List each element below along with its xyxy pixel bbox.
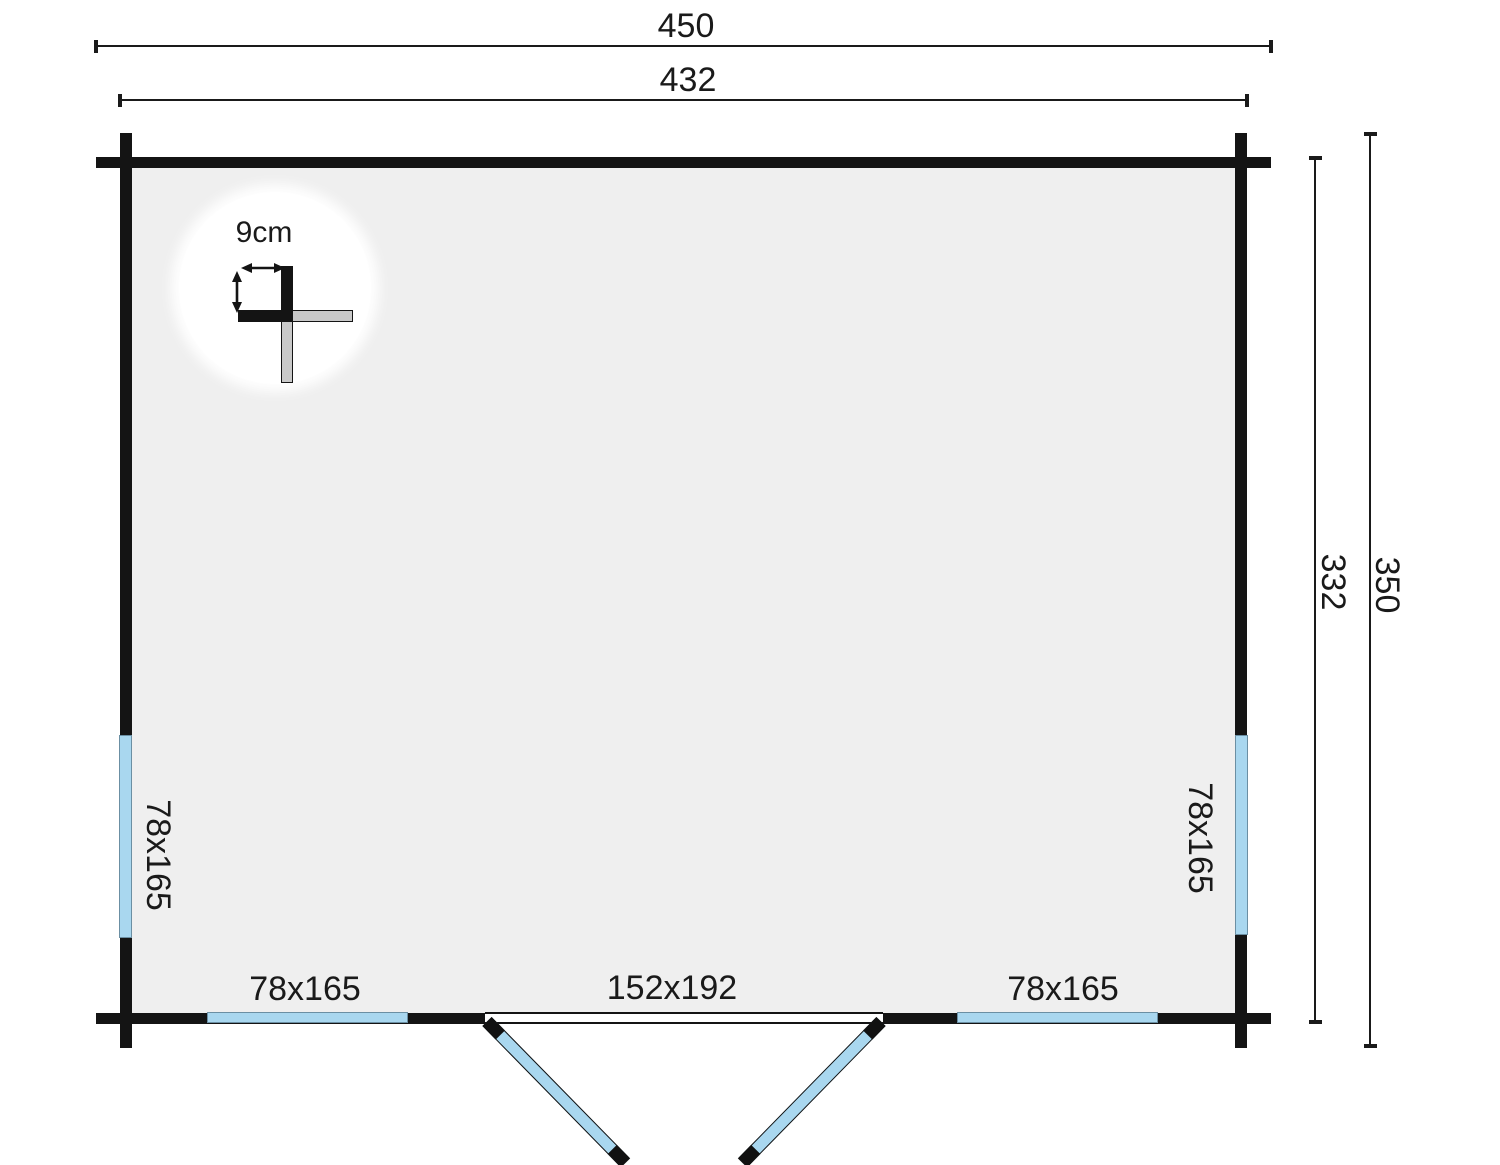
dim-tick bbox=[118, 94, 122, 107]
door-leaf-right bbox=[739, 1017, 886, 1165]
dim-tick bbox=[1364, 132, 1377, 136]
dim-tick bbox=[1364, 1044, 1377, 1048]
bottom-right-window bbox=[957, 1012, 1158, 1023]
dim-tick bbox=[94, 40, 98, 53]
door-tip-right bbox=[739, 1145, 762, 1165]
dimension-line-top-outer bbox=[95, 45, 1272, 47]
dimension-line-top-inner bbox=[119, 99, 1248, 101]
right-window bbox=[1235, 735, 1248, 935]
bottom-left-window-label: 78x165 bbox=[249, 972, 361, 1006]
detail-log-vertical-light bbox=[281, 321, 293, 383]
dimension-right-inner-value: 332 bbox=[1316, 554, 1350, 611]
dimension-top-inner-value: 432 bbox=[660, 63, 717, 97]
double-arrow-horizontal-icon bbox=[240, 261, 286, 275]
bottom-right-window-label: 78x165 bbox=[1007, 972, 1119, 1006]
dim-tick bbox=[1309, 156, 1322, 160]
floor-plan: 9cm 450 432 332 350 78x165 78x165 78x165… bbox=[0, 0, 1500, 1165]
dim-tick bbox=[1245, 94, 1249, 107]
door-threshold bbox=[485, 1012, 883, 1024]
top-wall bbox=[96, 157, 1271, 168]
wall-thickness-label: 9cm bbox=[236, 218, 293, 248]
right-window-label: 78x165 bbox=[1183, 782, 1217, 894]
dim-tick bbox=[1309, 1020, 1322, 1024]
dim-tick bbox=[1269, 40, 1273, 53]
dimension-top-outer-value: 450 bbox=[658, 9, 715, 43]
door-size-label: 152x192 bbox=[607, 971, 737, 1005]
door-leaf-left bbox=[482, 1017, 629, 1165]
double-arrow-vertical-icon bbox=[230, 270, 244, 314]
bottom-left-window bbox=[207, 1012, 408, 1023]
left-window bbox=[119, 735, 132, 938]
detail-log-horizontal-light bbox=[292, 310, 353, 322]
dimension-right-outer-value: 350 bbox=[1370, 557, 1404, 614]
left-window-label: 78x165 bbox=[141, 799, 175, 911]
door-tip-left bbox=[608, 1144, 631, 1165]
